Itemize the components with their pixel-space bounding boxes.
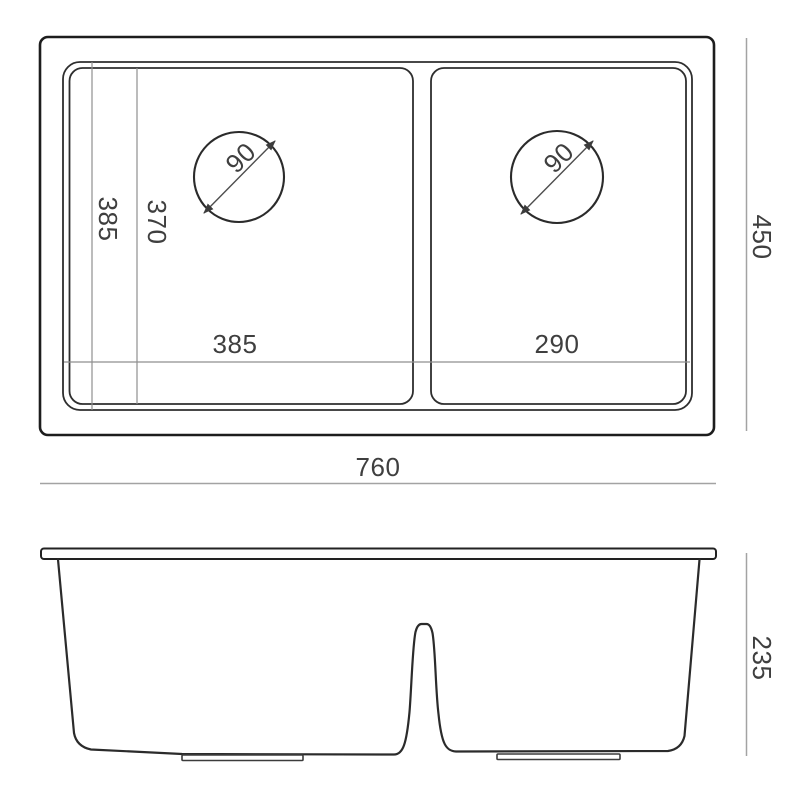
front-view-rim (41, 549, 716, 560)
front-view-body-outline (58, 560, 700, 755)
top-view: 90 90 385 370 385 290 450 760 (40, 37, 777, 484)
front-view-foot-left (182, 755, 303, 761)
front-view-foot-right (497, 754, 620, 760)
overall-height-label: 235 (747, 636, 777, 681)
top-view-outer-edge (40, 37, 714, 435)
left-depth-outer-label: 385 (93, 197, 123, 242)
drawing-canvas: 90 90 385 370 385 290 450 760 (0, 0, 800, 794)
front-view: 235 (41, 549, 777, 761)
overall-width-label: 760 (356, 452, 401, 482)
left-depth-inner-label: 370 (142, 200, 172, 245)
bowl-left-width-label: 385 (213, 329, 258, 359)
sink-technical-drawing: 90 90 385 370 385 290 450 760 (0, 0, 800, 794)
bowl-right-width-label: 290 (535, 329, 580, 359)
overall-depth-label: 450 (747, 215, 777, 260)
